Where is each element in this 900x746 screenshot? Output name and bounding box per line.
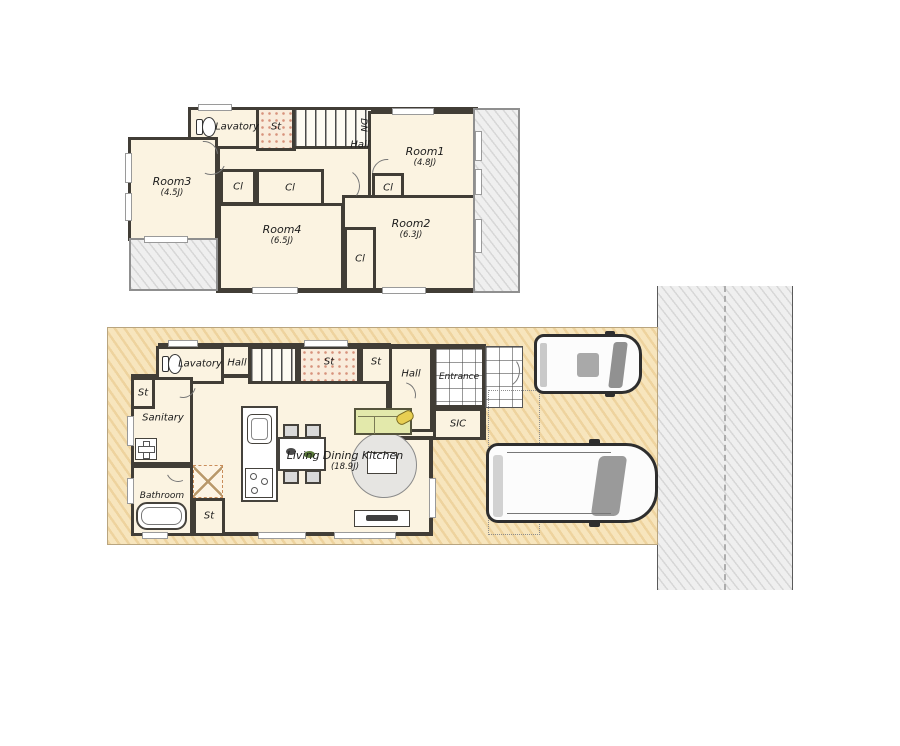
entrance-label: Entrance [439, 372, 479, 382]
room4-label: Room4 (6.5J) [263, 224, 302, 246]
window [168, 340, 198, 347]
lavatory-2f-label: Lavatory [215, 121, 259, 133]
storage-2f-label: St [271, 121, 281, 133]
window [127, 478, 134, 504]
sanitary-label: Sanitary [142, 412, 184, 424]
window [392, 108, 434, 115]
window [475, 169, 482, 195]
hall-upper-label: Hall [227, 357, 246, 369]
hall-2f-label: Hall [350, 139, 369, 151]
window [475, 219, 482, 253]
closet-b-label: Cl [285, 182, 295, 194]
stove-icon [245, 468, 273, 498]
dining-chair [283, 424, 299, 438]
dining-chair [305, 424, 321, 438]
storage-center-label: St [324, 356, 334, 368]
hall-1f-label: Hall [401, 368, 420, 380]
window [304, 340, 348, 347]
side-mirror [589, 439, 600, 445]
car-suv [486, 443, 658, 523]
room2-label: Room2 (6.3J) [392, 218, 431, 240]
sunroof [577, 353, 599, 377]
window [125, 153, 132, 183]
window [382, 287, 426, 294]
lavatory-1f-label: Lavatory [178, 358, 222, 370]
washbasin-icon [135, 438, 157, 460]
window [334, 532, 396, 539]
tv-icon [366, 515, 398, 521]
sic-label: SIC [450, 418, 466, 430]
window [198, 104, 232, 111]
storage-right-label: St [371, 356, 381, 368]
toilet-icon-2f [196, 115, 216, 139]
stairs-down-label: DN [358, 118, 368, 132]
roof-line [507, 513, 611, 514]
windshield [591, 456, 627, 516]
second-floor-plan: Lavatory St DN Hall Room1 (4.8J) Cl Room… [120, 97, 523, 299]
roof-line [507, 452, 611, 453]
rear-window [540, 343, 547, 387]
side-mirror [589, 521, 600, 527]
closet-c-label: Cl [355, 253, 365, 265]
car-compact [534, 334, 642, 394]
window [252, 287, 298, 294]
road [657, 286, 793, 590]
windshield [608, 342, 628, 388]
window [127, 416, 134, 446]
window [475, 131, 482, 161]
kitchen-sink-icon [247, 414, 272, 444]
rear-window [493, 455, 503, 517]
road-center-line [724, 286, 726, 590]
room3-label: Room3 (4.5J) [153, 176, 192, 198]
room1-label: Room1 (4.8J) [406, 146, 445, 168]
window [125, 193, 132, 221]
bathroom-label: Bathroom [140, 491, 184, 501]
side-mirror [605, 331, 615, 336]
washer-space [193, 465, 223, 498]
balcony-bottom-left [129, 238, 218, 291]
ldk-label: Living Dining Kitchen (18.9J) [287, 450, 404, 472]
side-mirror [605, 392, 615, 397]
storage-bottom-label: St [204, 510, 214, 522]
bathtub-icon [136, 502, 187, 530]
room4 [218, 203, 344, 291]
site-first-floor: Lavatory Hall St St Hall Entrance SIC St… [107, 327, 658, 545]
window [144, 236, 188, 243]
stairs-1f [248, 346, 298, 384]
closet-a-label: Cl [233, 181, 243, 193]
floorplan-page: { "floor2": { "lavatory": "Lavatory", "s… [0, 0, 900, 746]
window [429, 478, 436, 518]
closet-room1-label: Cl [383, 182, 393, 194]
window [142, 532, 168, 539]
storage-left-label: St [138, 387, 148, 399]
window [258, 532, 306, 539]
